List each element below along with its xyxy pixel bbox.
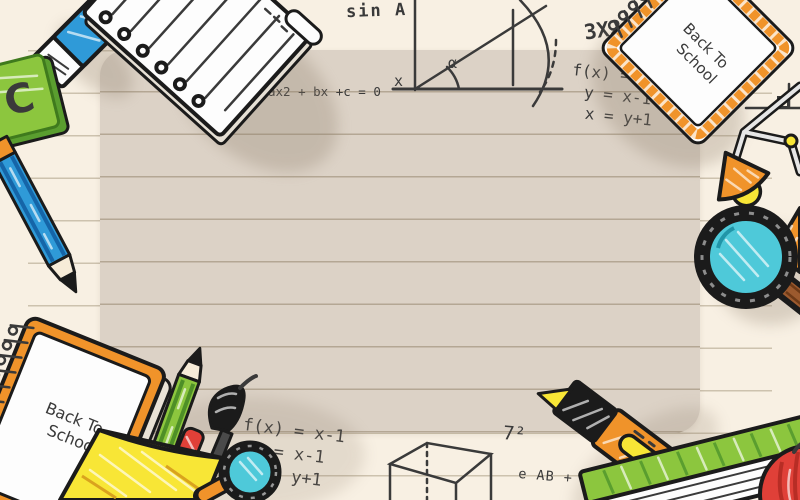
cube-diagram: [390, 443, 491, 500]
back-to-school-background: sin A ax2 + bx +c = 0 x α 3X2 f(x) = x-1…: [0, 0, 800, 500]
magnifying-glass-illustration: [702, 213, 800, 308]
doodle-illustrations: C Back To School: [0, 0, 800, 500]
blue-pencil-illustration: [0, 136, 87, 297]
axis-diagram: [393, 0, 562, 106]
